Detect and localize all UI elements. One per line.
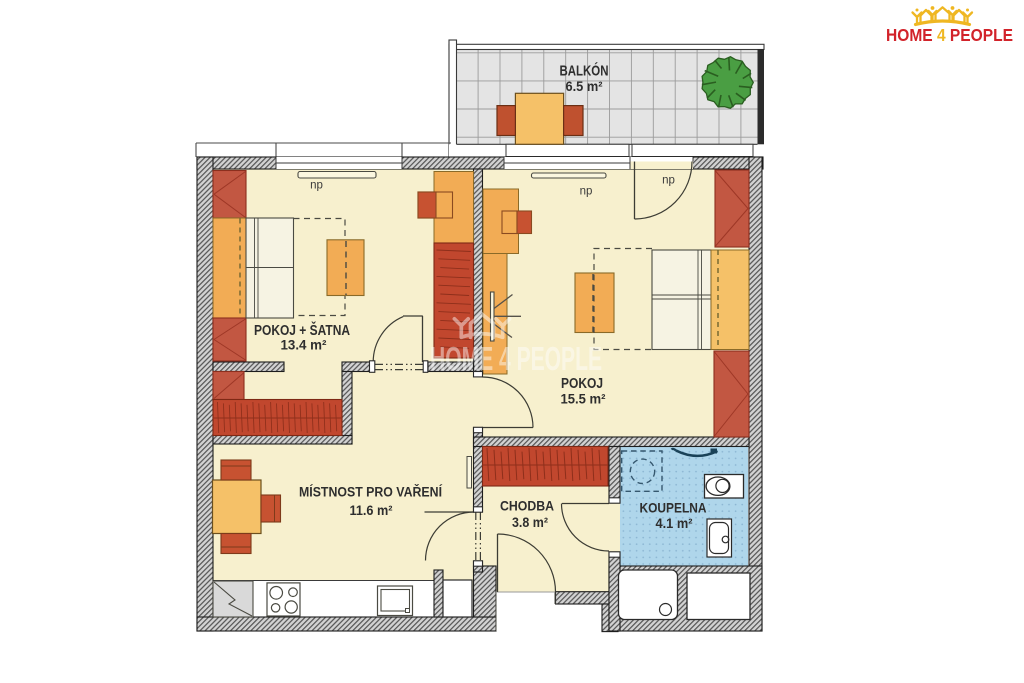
svg-text:np: np [580, 186, 593, 198]
svg-text:HOME 4 PEOPLE: HOME 4 PEOPLE [886, 25, 1013, 45]
svg-text:6.5 m²: 6.5 m² [566, 78, 603, 94]
svg-text:CHODBA: CHODBA [500, 498, 554, 514]
svg-text:MÍSTNOST PRO VAŘENÍ: MÍSTNOST PRO VAŘENÍ [299, 485, 443, 500]
svg-text:HOME 4 PEOPLE: HOME 4 PEOPLE [430, 340, 602, 377]
svg-text:BALKÓN: BALKÓN [560, 62, 609, 80]
svg-text:4.1 m²: 4.1 m² [656, 516, 693, 531]
svg-text:3.8 m²: 3.8 m² [512, 515, 548, 530]
svg-text:np: np [662, 175, 675, 187]
svg-text:KOUPELNA: KOUPELNA [640, 500, 707, 516]
svg-text:13.4 m²: 13.4 m² [281, 337, 327, 353]
svg-text:11.6 m²: 11.6 m² [350, 503, 393, 518]
svg-text:15.5 m²: 15.5 m² [561, 391, 606, 407]
svg-text:np: np [310, 180, 323, 192]
